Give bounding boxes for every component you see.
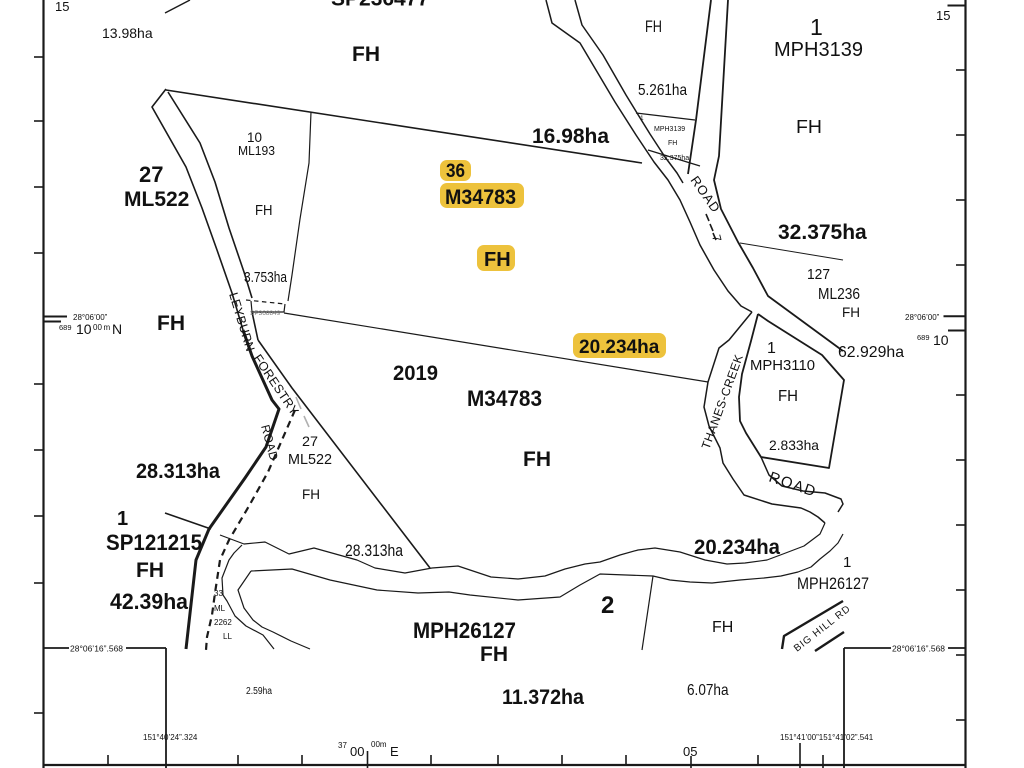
svg-text:151°41’00”151°41’02”.541: 151°41’00”151°41’02”.541 bbox=[780, 733, 874, 742]
svg-text:28.313ha: 28.313ha bbox=[136, 460, 220, 483]
svg-text:6.07ha: 6.07ha bbox=[687, 682, 729, 699]
svg-text:33: 33 bbox=[214, 589, 223, 598]
svg-text:20.234ha: 20.234ha bbox=[694, 536, 780, 559]
svg-text:FH: FH bbox=[712, 619, 733, 636]
svg-text:20.234ha: 20.234ha bbox=[579, 337, 660, 358]
svg-text:FH: FH bbox=[302, 486, 320, 502]
svg-text:MPH3110: MPH3110 bbox=[750, 358, 815, 374]
svg-text:11.372ha: 11.372ha bbox=[502, 686, 584, 709]
svg-text:28°06’00”: 28°06’00” bbox=[905, 313, 940, 322]
svg-text:N: N bbox=[112, 321, 122, 337]
svg-text:FH: FH bbox=[480, 643, 508, 666]
svg-text:ML522: ML522 bbox=[288, 452, 332, 468]
svg-text:27: 27 bbox=[302, 433, 318, 449]
svg-text:ML: ML bbox=[214, 604, 226, 613]
svg-text:1: 1 bbox=[117, 508, 128, 530]
svg-text:16.98ha: 16.98ha bbox=[532, 125, 609, 148]
svg-text:689: 689 bbox=[917, 333, 930, 342]
svg-text:689: 689 bbox=[59, 323, 72, 332]
svg-text:FH: FH bbox=[484, 249, 511, 271]
svg-text:28°06’16”.568: 28°06’16”.568 bbox=[892, 644, 945, 654]
svg-text:2.833ha: 2.833ha bbox=[769, 437, 819, 453]
svg-text:1: 1 bbox=[843, 554, 851, 571]
svg-text:1: 1 bbox=[810, 14, 823, 40]
svg-text:32.375ha: 32.375ha bbox=[660, 155, 689, 162]
svg-text:FH: FH bbox=[352, 43, 380, 66]
svg-text:32.375ha: 32.375ha bbox=[778, 221, 867, 244]
svg-text:3.753ha: 3.753ha bbox=[244, 269, 288, 286]
svg-text:SP121215: SP121215 bbox=[106, 530, 202, 555]
svg-text:FH: FH bbox=[523, 448, 551, 471]
svg-text:2: 2 bbox=[601, 592, 614, 619]
svg-text:10: 10 bbox=[933, 332, 949, 348]
svg-text:127: 127 bbox=[807, 266, 830, 283]
svg-text:FH: FH bbox=[255, 202, 273, 219]
svg-text:00: 00 bbox=[350, 744, 364, 759]
svg-text:FH: FH bbox=[842, 304, 860, 320]
svg-text:MPH26127: MPH26127 bbox=[413, 618, 516, 643]
svg-text:2262: 2262 bbox=[214, 618, 232, 627]
svg-text:151°40’24”.324: 151°40’24”.324 bbox=[143, 733, 198, 742]
svg-text:28°06’16”.568: 28°06’16”.568 bbox=[70, 644, 123, 654]
svg-text:1: 1 bbox=[640, 115, 644, 122]
svg-text:FH: FH bbox=[668, 140, 677, 147]
svg-text:1: 1 bbox=[767, 340, 776, 357]
svg-text:42.39ha: 42.39ha bbox=[110, 589, 189, 614]
svg-text:MPH3139: MPH3139 bbox=[654, 126, 685, 133]
svg-text:36: 36 bbox=[446, 161, 465, 182]
svg-text:E: E bbox=[390, 744, 399, 759]
svg-text:ML522: ML522 bbox=[124, 188, 189, 211]
svg-text:2.59ha: 2.59ha bbox=[246, 686, 272, 697]
svg-text:FH: FH bbox=[157, 312, 185, 335]
svg-text:ML193: ML193 bbox=[238, 143, 275, 158]
svg-text:FH: FH bbox=[778, 388, 798, 405]
svg-text:FH: FH bbox=[796, 117, 822, 137]
svg-text:05: 05 bbox=[683, 744, 697, 759]
svg-text:M34783: M34783 bbox=[445, 186, 516, 209]
svg-text:SP368849: SP368849 bbox=[250, 310, 281, 317]
svg-text:00m: 00m bbox=[371, 740, 387, 749]
svg-text:00 m: 00 m bbox=[93, 323, 111, 332]
svg-text:10: 10 bbox=[76, 321, 92, 337]
svg-text:2019: 2019 bbox=[393, 362, 438, 385]
svg-text:LL: LL bbox=[223, 632, 232, 641]
svg-text:37: 37 bbox=[338, 741, 347, 750]
svg-text:FH: FH bbox=[645, 17, 662, 36]
svg-text:MPH3139: MPH3139 bbox=[774, 39, 863, 61]
svg-text:13.98ha: 13.98ha bbox=[102, 25, 153, 41]
svg-text:FH: FH bbox=[136, 559, 164, 582]
svg-text:5.261ha: 5.261ha bbox=[638, 82, 687, 99]
svg-text:M34783: M34783 bbox=[467, 386, 542, 411]
svg-text:ML236: ML236 bbox=[818, 286, 860, 303]
svg-text:62.929ha: 62.929ha bbox=[838, 344, 904, 361]
svg-text:SP236477: SP236477 bbox=[331, 0, 429, 11]
svg-text:28.313ha: 28.313ha bbox=[345, 541, 403, 560]
svg-text:MPH26127: MPH26127 bbox=[797, 574, 869, 593]
svg-text:15: 15 bbox=[55, 0, 69, 14]
svg-text:15: 15 bbox=[936, 8, 950, 23]
svg-text:27: 27 bbox=[139, 162, 163, 187]
